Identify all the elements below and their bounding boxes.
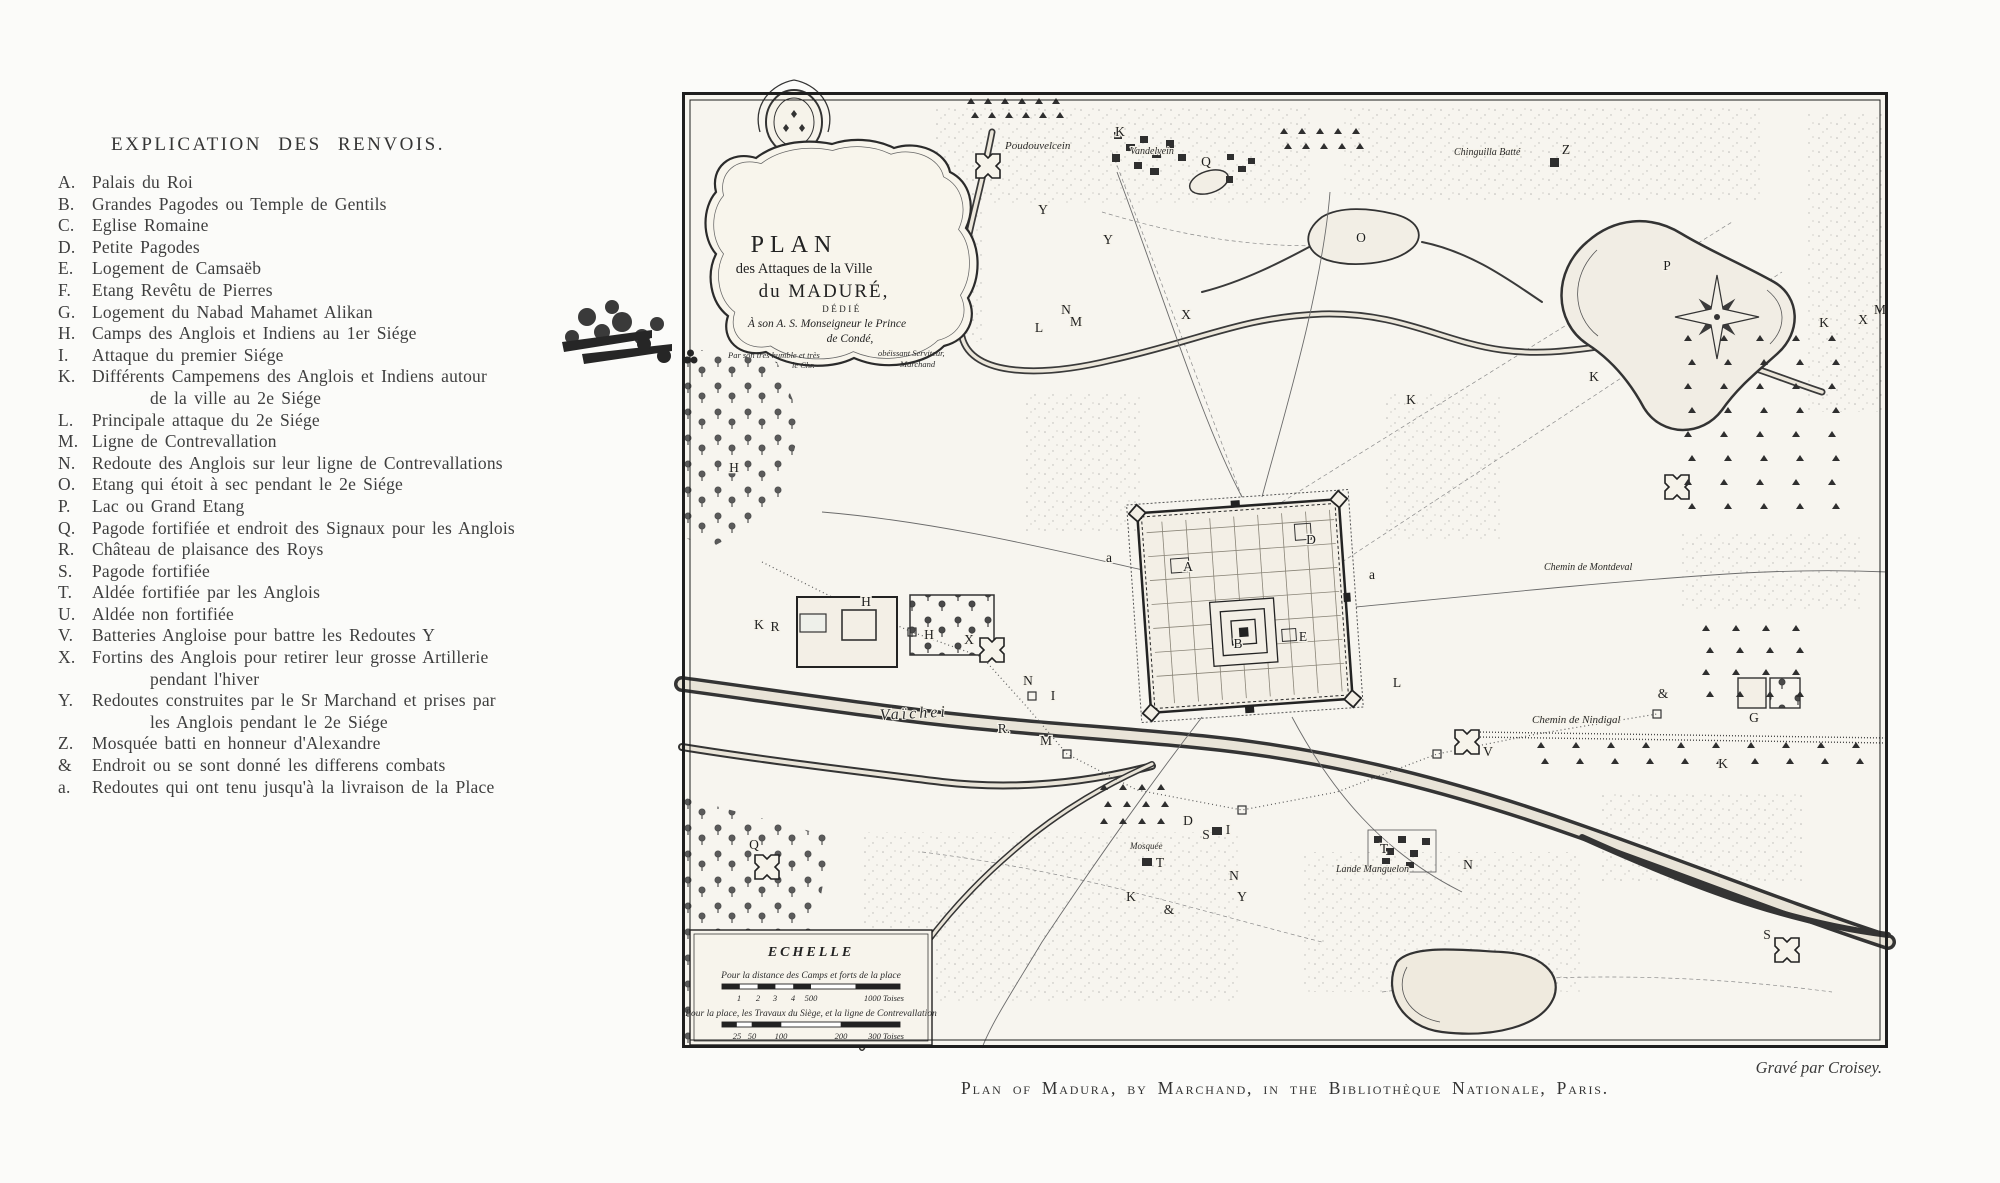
legend-item-text: Fortins des Anglois pour retirer leur gr… [92, 647, 638, 669]
road-label-nindigal: Chemin de Nindigal [1532, 714, 1621, 726]
legend-item: K.Différents Campemens des Anglois et In… [58, 366, 638, 388]
legend-item-key: M. [58, 431, 92, 453]
legend-item-text: Différents Campemens des Anglois et Indi… [92, 366, 638, 388]
legend-item-key: F. [58, 280, 92, 302]
legend-item-text: Etang Revêtu de Pierres [92, 280, 638, 302]
legend-item: S.Pagode fortifiée [58, 561, 638, 583]
legend-item-text: Aldée non fortifiée [92, 604, 638, 626]
aldee-label: Lande Manguelon [1335, 864, 1409, 875]
map-ref-letter: N [1061, 302, 1071, 317]
map-ref-letter: & [1658, 686, 1669, 701]
scale-bar-2 [722, 1022, 900, 1027]
cartouche-city: du MADURÉ, [759, 280, 890, 302]
scale-box: ECHELLE Pour la distance des Camps et fo… [684, 930, 937, 1045]
village-label-poudouvelcein: Poudouvelcein [1004, 140, 1071, 152]
legend-item: P.Lac ou Grand Etang [58, 496, 638, 518]
legend-item: &Endroit ou se sont donné les differens … [58, 755, 638, 777]
legend-item-key: X. [58, 647, 92, 669]
legend-item: B.Grandes Pagodes ou Temple de Gentils [58, 194, 638, 216]
map-ref-letter: N [1229, 868, 1239, 883]
legend-item: O.Etang qui étoit à sec pendant le 2e Si… [58, 474, 638, 496]
legend-item: R.Château de plaisance des Roys [58, 539, 638, 561]
legend-item-text: Batteries Angloise pour battre les Redou… [92, 625, 638, 647]
map-ref-letter: G [1749, 710, 1759, 725]
legend-item-text: pendant l'hiver [150, 669, 638, 691]
map-ref-letter: Q [749, 837, 759, 852]
legend-item-text: Petite Pagodes [92, 237, 638, 259]
river-label: Vaïchei [879, 703, 948, 724]
legend-item-key: U. [58, 604, 92, 626]
map-ref-letter: K [1819, 315, 1829, 330]
map-ref-letter: T [1380, 841, 1389, 856]
legend-item: G.Logement du Nabad Mahamet Alikan [58, 302, 638, 324]
cartouche-conde: de Condé, [827, 333, 874, 345]
legend-item-text: Logement de Camsaëb [92, 258, 638, 280]
cartouche-title: PLAN [751, 232, 838, 258]
map-ref-letter: K [1406, 392, 1416, 407]
scale-title: ECHELLE [767, 945, 854, 960]
map-ref-letter: L [1035, 320, 1043, 335]
cartouche-byline2: obéissant Serviteur, [878, 348, 945, 358]
plate-caption: Plan of Madura, by Marchand, in the Bibl… [682, 1078, 1888, 1099]
map-ref-letter: N [1463, 857, 1473, 872]
map-ref-letter: K [1718, 756, 1728, 771]
legend-item: L.Principale attaque du 2e Siége [58, 410, 638, 432]
map-ref-letter: S [1763, 927, 1771, 942]
legend-item-text: les Anglois pendant le 2e Siége [150, 712, 638, 734]
map-ref-letter: K [1126, 889, 1136, 904]
scale-bar-1 [722, 984, 900, 989]
legend-item-text: Redoutes construites par le Sr Marchand … [92, 690, 638, 712]
legend-item-text: Redoutes qui ont tenu jusqu'à la livrais… [92, 777, 638, 799]
map-ref-letter: M [1070, 314, 1082, 329]
legend-item-key: E. [58, 258, 92, 280]
legend-item-text: Logement du Nabad Mahamet Alikan [92, 302, 638, 324]
legend-item-key: Z. [58, 733, 92, 755]
map-ref-letter: H [729, 460, 739, 475]
map-ref-letter: N [1023, 673, 1033, 688]
legend-item-key: K. [58, 366, 92, 388]
legend-item-key: V. [58, 625, 92, 647]
map-ref-letter: H [924, 627, 934, 642]
legend-item: N.Redoute des Anglois sur leur ligne de … [58, 453, 638, 475]
legend-item: a.Redoutes qui ont tenu jusqu'à la livra… [58, 777, 638, 799]
legend-item: M.Ligne de Contrevallation [58, 431, 638, 453]
legend-item: V.Batteries Angloise pour battre les Red… [58, 625, 638, 647]
legend-item-text: Pagode fortifiée et endroit des Signaux … [92, 518, 638, 540]
map-ref-letter: R [770, 619, 779, 634]
map-ref-letter: X [1858, 312, 1868, 327]
scale-tick-label: 3 [772, 993, 777, 1003]
scale-caption-2: Pour la place, les Travaux du Siège, et … [684, 1009, 937, 1019]
village-label-vandelvein: Vandelvein [1130, 146, 1174, 157]
legend-item-continuation: de la ville au 2e Siége [58, 388, 638, 410]
map-ref-letter: D [1306, 532, 1316, 547]
map-ref-letter: K [1115, 124, 1125, 139]
legend-panel: EXPLICATION DES RENVOIS. A.Palais du Roi… [58, 134, 638, 798]
legend-item: H.Camps des Anglois et Indiens au 1er Si… [58, 323, 638, 345]
legend-item-key: N. [58, 453, 92, 475]
legend-item-key: a. [58, 777, 92, 799]
legend-item-text: Attaque du premier Siége [92, 345, 638, 367]
scale-tick-label: 1 [737, 993, 741, 1003]
legend-item-key: S. [58, 561, 92, 583]
map-ref-letter: I [1226, 822, 1231, 837]
legend-item: T.Aldée fortifiée par les Anglois [58, 582, 638, 604]
legend-item: Q.Pagode fortifiée et endroit des Signau… [58, 518, 638, 540]
legend-item-text: Redoute des Anglois sur leur ligne de Co… [92, 453, 638, 475]
map-ref-letter: L [1393, 675, 1401, 690]
legend-item-key: G. [58, 302, 92, 324]
engraved-plate-page: EXPLICATION DES RENVOIS. A.Palais du Roi… [0, 0, 2000, 1183]
map-ref-letter: Y [1038, 202, 1048, 217]
map-ref-letter: Y [1237, 889, 1247, 904]
cartouche-byline3: le Chr. [792, 360, 815, 370]
city-fort [1127, 490, 1364, 723]
legend-title: EXPLICATION DES RENVOIS. [58, 134, 498, 156]
map-ref-letter: P [1663, 258, 1671, 273]
map-ref-letter: Q [1201, 154, 1211, 169]
legend-item-text: Ligne de Contrevallation [92, 431, 638, 453]
mosque-label: Mosquée [1129, 841, 1163, 851]
legend-item-text: Eglise Romaine [92, 215, 638, 237]
map-ref-letter: T [1156, 855, 1165, 870]
legend-item-key: H. [58, 323, 92, 345]
legend-item-text: Château de plaisance des Roys [92, 539, 638, 561]
legend-item: E.Logement de Camsaëb [58, 258, 638, 280]
map-ref-letter: Y [1103, 232, 1113, 247]
legend-item-text: Principale attaque du 2e Siége [92, 410, 638, 432]
map-ref-letter: K [754, 617, 764, 632]
engraver-credit: Gravé par Croisey. [682, 1058, 1882, 1078]
legend-item: C.Eglise Romaine [58, 215, 638, 237]
legend-item-continuation: pendant l'hiver [58, 669, 638, 691]
map-ref-letter: B [1233, 636, 1242, 651]
map-ref-letter: a [1106, 550, 1112, 565]
cartouche-dedie: DÉDIÉ [822, 304, 862, 314]
legend-item: U.Aldée non fortifiée [58, 604, 638, 626]
map-ref-letter: A [1183, 559, 1193, 574]
legend-item-continuation: les Anglois pendant le 2e Siége [58, 712, 638, 734]
legend-item-key: R. [58, 539, 92, 561]
legend-item-key: C. [58, 215, 92, 237]
legend-item-key: A. [58, 172, 92, 194]
legend-item-key: O. [58, 474, 92, 496]
legend-item-text: Palais du Roi [92, 172, 638, 194]
map-ref-letter: X [1181, 307, 1191, 322]
madura-map: PLAN des Attaques de la Ville du MADURÉ,… [682, 92, 1888, 1048]
map-ref-letter: H [861, 594, 871, 609]
cartouche-subtitle: des Attaques de la Ville [736, 261, 873, 277]
legend-item-key: L. [58, 410, 92, 432]
cartouche-byline1: Par son très humble et très [727, 350, 821, 360]
chapel-label: Chinguilla Batté [1454, 147, 1521, 158]
map-ref-letter: D [1183, 813, 1193, 828]
map-ref-letter: M [1040, 733, 1052, 748]
road-label-montdeval: Chemin de Montdeval [1544, 562, 1633, 573]
map-ref-letter: R. [998, 721, 1010, 736]
legend-list: A.Palais du RoiB.Grandes Pagodes ou Temp… [58, 172, 638, 798]
legend-item-key: & [58, 755, 92, 777]
legend-item-key: D. [58, 237, 92, 259]
map-ref-letter: & [1164, 902, 1175, 917]
legend-item: I.Attaque du premier Siége [58, 345, 638, 367]
legend-item-text: Lac ou Grand Etang [92, 496, 638, 518]
map-ref-letter: X [964, 632, 974, 647]
scale-tick-label: 500 [805, 993, 819, 1003]
map-ref-letter: a [1369, 567, 1375, 582]
map-ref-letter: S [1202, 827, 1210, 842]
legend-item-text: Camps des Anglois et Indiens au 1er Siég… [92, 323, 638, 345]
legend-item-text: de la ville au 2e Siége [150, 388, 638, 410]
scale-tick-label: 1000 Toises [864, 993, 905, 1003]
map-ref-letter: K [1589, 369, 1599, 384]
legend-item: X.Fortins des Anglois pour retirer leur … [58, 647, 638, 669]
legend-item-text: Endroit ou se sont donné les differens c… [92, 755, 638, 777]
map-ref-letter: V [1483, 744, 1493, 759]
legend-item-key: Y. [58, 690, 92, 712]
scale-caption-1: Pour la distance des Camps et forts de l… [720, 970, 901, 981]
cartouche-byline4: Marchand [899, 359, 936, 369]
legend-item-text: Grandes Pagodes ou Temple de Gentils [92, 194, 638, 216]
map-ref-letter: E [1299, 629, 1307, 644]
legend-item-key: B. [58, 194, 92, 216]
map-ref-letter: O [1356, 230, 1366, 245]
legend-item-key: I. [58, 345, 92, 367]
legend-item-key: Q. [58, 518, 92, 540]
legend-item: Y.Redoutes construites par le Sr Marchan… [58, 690, 638, 712]
map-ref-letter: I [1051, 688, 1056, 703]
great-pagoda [1210, 598, 1278, 666]
legend-item: D.Petite Pagodes [58, 237, 638, 259]
legend-item-text: Aldée fortifiée par les Anglois [92, 582, 638, 604]
map-ref-letter: Z [1562, 142, 1570, 157]
legend-item: Z.Mosquée batti en honneur d'Alexandre [58, 733, 638, 755]
legend-item: F.Etang Revêtu de Pierres [58, 280, 638, 302]
legend-item: A.Palais du Roi [58, 172, 638, 194]
legend-item-text: Etang qui étoit à sec pendant le 2e Siég… [92, 474, 638, 496]
legend-item-text: Mosquée batti en honneur d'Alexandre [92, 733, 638, 755]
legend-item-text: Pagode fortifiée [92, 561, 638, 583]
legend-item-key: T. [58, 582, 92, 604]
cartouche-dedication: À son A. S. Monseigneur le Prince [747, 316, 906, 330]
legend-item-key: P. [58, 496, 92, 518]
